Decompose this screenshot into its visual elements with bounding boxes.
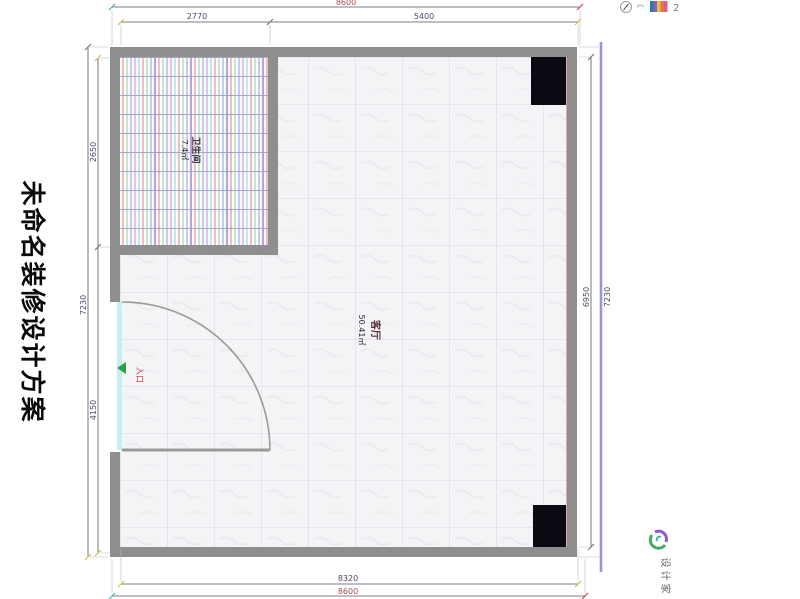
dim-top-left: 2770 — [187, 12, 207, 21]
entrance-label: 入口 — [135, 367, 144, 383]
wall-top — [110, 47, 577, 57]
column-top-right — [531, 57, 566, 105]
brand-name: 设计家 — [659, 558, 672, 597]
top-right-tools: 2 — [621, 1, 680, 14]
wall-right — [567, 47, 577, 557]
scale-ruler-icon — [650, 1, 668, 12]
dim-right-inner: 6950 — [582, 287, 591, 307]
bathroom-label: 卫生间 7.4㎡ — [180, 136, 202, 163]
dim-bottom-outer: 8600 — [338, 587, 358, 596]
floor-plan-svg: 未命名装修设计方案 入口 卫生间 7.4㎡ 客厅 50.41㎡ — [0, 0, 800, 599]
bathroom-name: 卫生间 — [190, 136, 202, 163]
wall-left-lower — [110, 452, 120, 557]
living-room-area: 50.41㎡ — [357, 315, 366, 346]
bathroom-area: 7.4㎡ — [180, 140, 189, 161]
dim-left-overall: 7230 — [79, 295, 88, 315]
compass-icon — [621, 2, 632, 13]
page-title: 未命名装修设计方案 — [18, 180, 47, 423]
dim-bottom-inner: 8320 — [338, 574, 358, 583]
dim-left-lower: 4150 — [89, 400, 98, 420]
wall-bathroom-right — [268, 47, 278, 255]
floor-plan-canvas: 未命名装修设计方案 入口 卫生间 7.4㎡ 客厅 50.41㎡ — [0, 0, 800, 599]
north-squiggle-icon — [637, 5, 644, 7]
dim-right-outer: 7230 — [603, 287, 612, 307]
wall-left-upper — [110, 47, 120, 302]
wall-bottom — [110, 547, 577, 557]
watermark: 设计家 — [650, 531, 672, 596]
scale-value: 2 — [673, 3, 679, 14]
living-room-name: 客厅 — [369, 319, 382, 340]
column-bottom-right — [533, 505, 566, 547]
door-jamb — [117, 302, 122, 450]
brand-logo-icon — [650, 531, 666, 548]
dim-top-overall: 8600 — [336, 0, 356, 7]
dim-left-upper: 2650 — [89, 142, 98, 162]
dim-top-right: 5400 — [414, 12, 434, 21]
wall-bathroom-bottom — [110, 245, 278, 255]
